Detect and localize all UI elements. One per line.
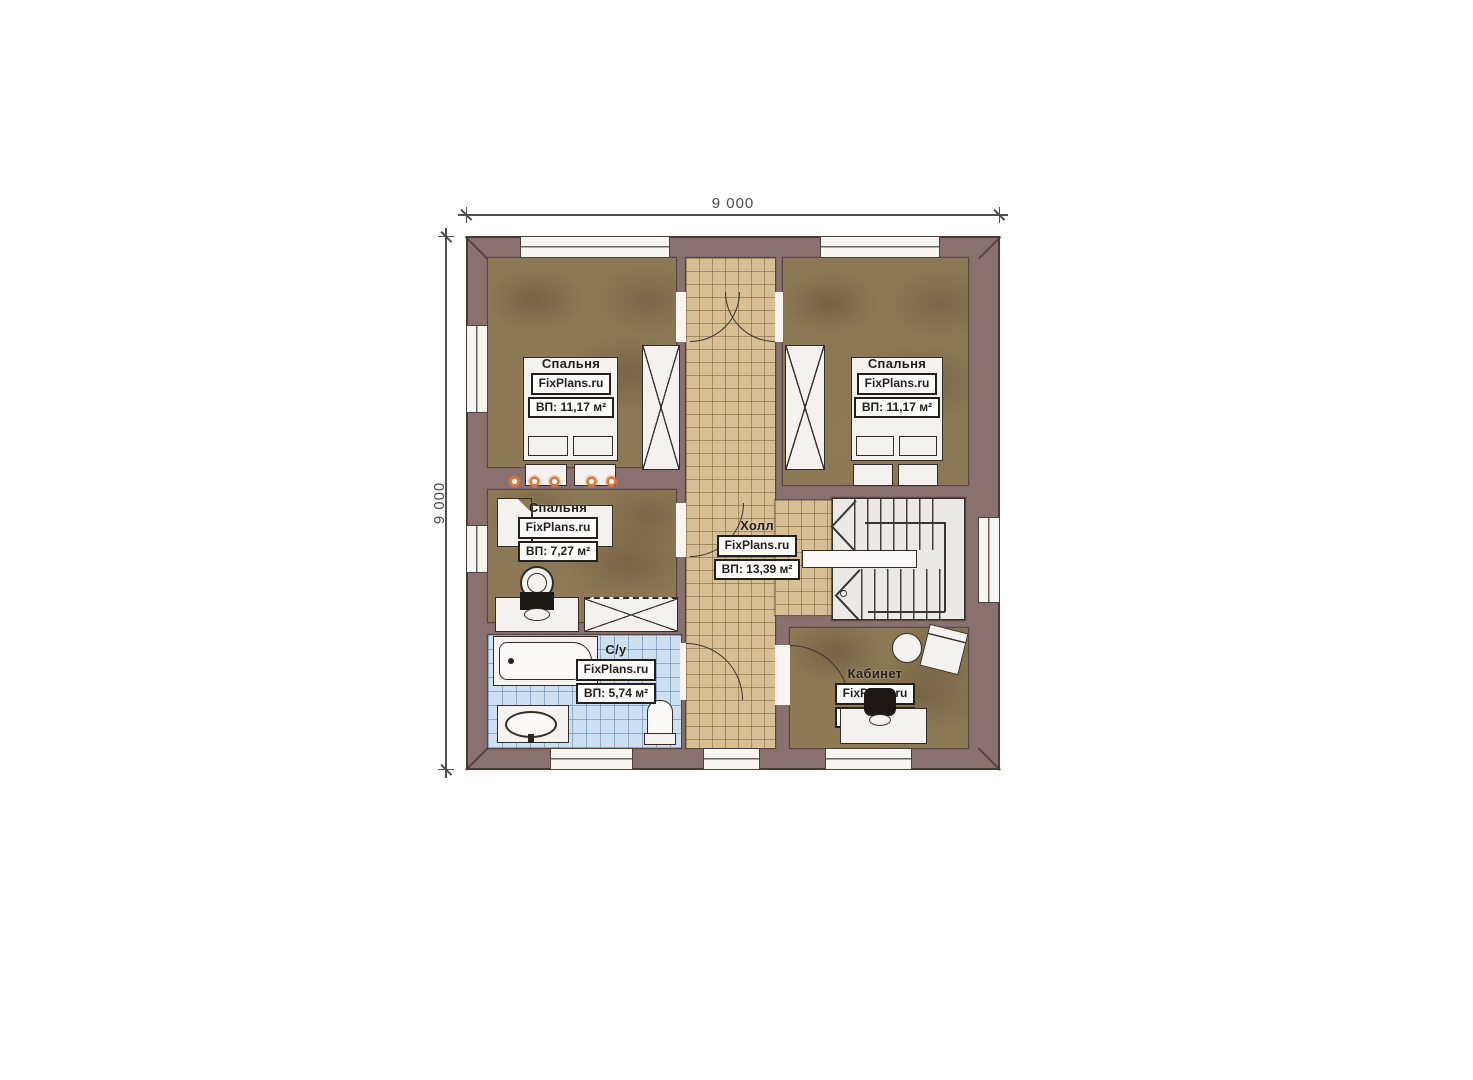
sink-tap xyxy=(528,734,534,743)
wardrobe xyxy=(785,345,825,470)
spotlight-icon xyxy=(585,475,598,488)
dimension-line-left xyxy=(445,228,447,778)
stairs-inner-rail xyxy=(868,611,945,613)
wall-mitre xyxy=(978,236,1001,259)
nightstand xyxy=(853,464,893,486)
wardrobe-sliding xyxy=(584,597,678,632)
pillow xyxy=(573,436,613,456)
door-opening-bedroom-small xyxy=(676,503,686,557)
window-bottom-corridor xyxy=(703,748,760,770)
window-right-stairs xyxy=(978,517,1000,603)
room-label-bedroom-top-left: Спальня FixPlans.ru ВП: 11,17 м² xyxy=(506,356,636,418)
dimension-line-top xyxy=(458,214,1008,216)
office-chair-base xyxy=(869,714,891,726)
spotlight-icon xyxy=(508,475,521,488)
room-area-label: ВП: 11,17 м² xyxy=(528,397,614,419)
pillow xyxy=(528,436,568,456)
room-label-bathroom: С/у FixPlans.ru ВП: 5,74 м² xyxy=(551,642,681,704)
room-area-label: ВП: 5,74 м² xyxy=(576,683,656,705)
brand-label: FixPlans.ru xyxy=(531,373,612,395)
bathtub-drain xyxy=(508,658,514,664)
room-label-hall: Холл FixPlans.ru ВП: 13,39 м² xyxy=(692,518,822,580)
room-name: Спальня xyxy=(529,500,587,515)
door-opening-bedroom-top-left xyxy=(676,292,686,342)
wall-mitre xyxy=(465,747,488,770)
room-name: Спальня xyxy=(868,356,926,371)
room-area-label: ВП: 11,17 м² xyxy=(854,397,940,419)
dimension-label-top: 9 000 xyxy=(466,195,1000,212)
window-left-lower xyxy=(466,525,488,573)
office-chair xyxy=(864,688,896,716)
room-name: Спальня xyxy=(542,356,600,371)
window-top-right xyxy=(820,236,940,258)
brand-label: FixPlans.ru xyxy=(717,535,798,557)
brand-label: FixPlans.ru xyxy=(857,373,938,395)
brand-label: FixPlans.ru xyxy=(518,517,599,539)
door-opening-bedroom-top-right xyxy=(775,292,783,342)
window-left-upper xyxy=(466,325,488,413)
room-name: Кабинет xyxy=(848,666,903,681)
spotlight-icon xyxy=(548,475,561,488)
chair-base xyxy=(524,608,550,621)
stairs-direction-node xyxy=(840,590,847,597)
brand-label: FixPlans.ru xyxy=(576,659,657,681)
pillow xyxy=(899,436,937,456)
toilet-bowl xyxy=(647,700,673,736)
window-top-left xyxy=(520,236,670,258)
wardrobe xyxy=(642,345,680,470)
room-area-label: ВП: 7,27 м² xyxy=(518,541,598,563)
stairs-inner-rail xyxy=(865,522,945,524)
window-bottom-bathroom xyxy=(550,748,633,770)
spotlight-icon xyxy=(528,475,541,488)
wall-mitre xyxy=(978,747,1001,770)
floor-plan-page: 9 000 9 000 xyxy=(0,0,1473,1080)
wall-mitre xyxy=(465,236,488,259)
spotlight-icon xyxy=(605,475,618,488)
stairs-inner-rail xyxy=(944,522,946,612)
floor-plan: Спальня FixPlans.ru ВП: 11,17 м² Спальня… xyxy=(466,236,1000,770)
room-name: Холл xyxy=(740,518,774,533)
nightstand xyxy=(898,464,938,486)
window-bottom-office xyxy=(825,748,912,770)
room-area-label: ВП: 13,39 м² xyxy=(714,559,801,581)
stairs-upper-flight xyxy=(854,499,944,550)
toilet-tank xyxy=(644,733,676,745)
room-label-bedroom-top-right: Спальня FixPlans.ru ВП: 11,17 м² xyxy=(832,356,962,418)
round-table xyxy=(892,633,922,663)
room-label-bedroom-small: Спальня FixPlans.ru ВП: 7,27 м² xyxy=(493,500,623,562)
stool-seat-inner xyxy=(527,573,547,593)
room-name: С/у xyxy=(605,642,626,657)
pillow xyxy=(856,436,894,456)
door-opening-office xyxy=(775,645,790,705)
